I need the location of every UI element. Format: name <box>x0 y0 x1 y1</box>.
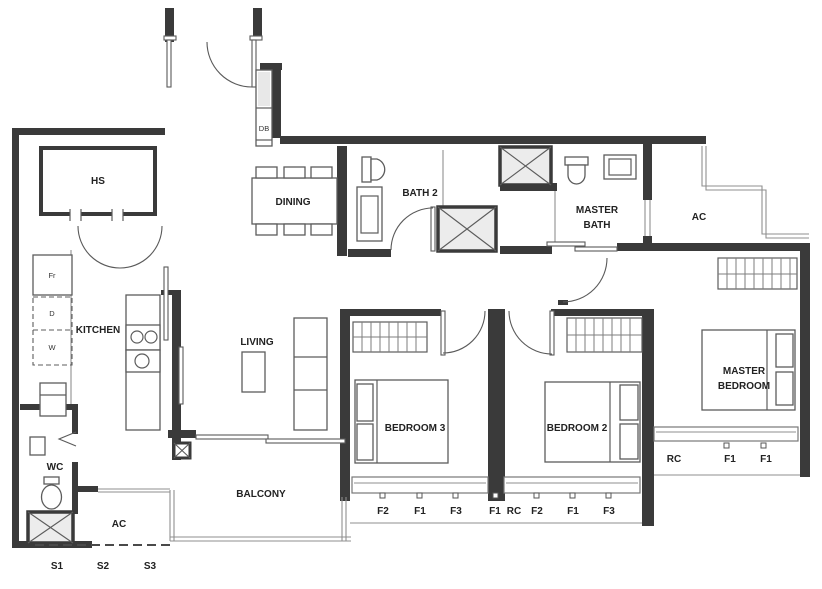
right-outer-wall <box>800 243 810 477</box>
floor-plan-drawing: HS DB DINING BATH 2 MASTER BATH AC KITCH… <box>0 0 822 589</box>
master-window-sill <box>654 427 798 441</box>
dryer-label: D <box>49 309 55 318</box>
room-label-balcony: BALCONY <box>236 489 286 500</box>
facade-label: F1 <box>414 506 426 517</box>
wc-fixtures <box>30 437 62 509</box>
hs-door-arc <box>78 226 162 268</box>
dining-chair <box>256 224 277 235</box>
masterbath-toilet-icon <box>568 165 585 184</box>
facade-mark-icon <box>570 493 575 498</box>
hall-top-wall <box>500 246 552 254</box>
masterbath-slider-panel <box>547 242 585 246</box>
dining-chair <box>284 167 305 178</box>
dryer-washer-stack <box>33 297 72 365</box>
bedroom3-door-leaf <box>441 311 445 355</box>
floor-plan: HS DB DINING BATH 2 MASTER BATH AC KITCH… <box>0 0 822 589</box>
facade-label: RC <box>507 506 521 517</box>
facade-label: F1 <box>567 506 579 517</box>
facade-mark-icon <box>724 443 729 448</box>
bedroom2-door-arc <box>509 311 552 354</box>
top-mid-wall <box>280 136 706 144</box>
dining-chair <box>311 224 332 235</box>
top-left-wall <box>12 128 165 135</box>
facade-mark-icon <box>453 493 458 498</box>
balcony-slider-panel <box>266 439 345 443</box>
db-cabinet-shade <box>258 72 270 106</box>
pillow-icon <box>776 372 793 405</box>
pillow-icon <box>357 384 373 421</box>
room-label-masterbath-1: MASTER <box>576 205 619 216</box>
shelter-label: S1 <box>51 561 64 572</box>
facade-label: F3 <box>603 506 615 517</box>
facade-label: F2 <box>377 506 389 517</box>
fridge-label: Fr <box>48 271 56 280</box>
db-cabinet <box>256 70 272 146</box>
entry-door-arc <box>207 42 252 87</box>
bedroom3-door-arc <box>443 311 485 353</box>
entry-door-leaf <box>167 40 171 87</box>
masterbath-toilet-tank <box>565 157 588 165</box>
facade-label: F1 <box>760 454 772 465</box>
room-label-masterbedroom-2: BEDROOM <box>718 381 770 392</box>
pillow-icon <box>357 424 373 460</box>
living-furniture <box>242 318 327 430</box>
left-outer-wall <box>12 128 19 548</box>
bedroom3-left-wall <box>340 309 350 501</box>
bedroom2-window-sill <box>504 477 640 493</box>
balcony-slider-panel <box>196 435 268 439</box>
pillow-icon <box>776 334 793 367</box>
bedroom2-right-wall <box>642 309 654 526</box>
hs-door-gap-left <box>70 209 81 217</box>
ac-bottom-wall <box>638 243 810 251</box>
room-label-bedroom2: BEDROOM 2 <box>547 423 608 434</box>
masterbath-slider-panel <box>575 247 617 251</box>
bath2-door-arc <box>391 208 433 250</box>
bath2-toilet-icon <box>371 159 385 180</box>
facade-label: F2 <box>531 506 543 517</box>
room-label-living: LIVING <box>240 337 274 348</box>
facade-mark-icon <box>606 493 611 498</box>
masterbath-right-wall-upper <box>643 144 652 200</box>
bath2-toilet-tank <box>362 157 371 182</box>
db-side-wall <box>272 63 281 138</box>
pillow-icon <box>620 424 638 459</box>
dining-chair <box>256 167 277 178</box>
bedroom2-top-wall <box>551 309 643 316</box>
facade-label: F3 <box>450 506 462 517</box>
bedroom2-door-leaf <box>550 311 554 355</box>
ac-upper-parapet-outer <box>706 146 809 238</box>
facade-mark-icon <box>493 493 498 498</box>
room-label-ac-lower: AC <box>112 519 126 530</box>
entry-wall-right <box>253 8 262 37</box>
hs-door-gap-right <box>112 209 123 217</box>
room-label-masterbath-2: BATH <box>583 220 610 231</box>
entry-jamb <box>250 36 262 40</box>
facade-label: F1 <box>724 454 736 465</box>
walls <box>12 8 810 548</box>
wc-bifold-door <box>59 432 76 446</box>
pillow-icon <box>620 385 638 420</box>
room-label-hs: HS <box>91 176 105 187</box>
facade-mark-icon <box>761 443 766 448</box>
hob-bottom <box>126 350 160 372</box>
bath2-bottom-wall <box>348 249 391 257</box>
wc-basin-icon <box>30 437 45 455</box>
room-label-ac-upper: AC <box>692 212 706 223</box>
room-label-masterbedroom-1: MASTER <box>723 366 766 377</box>
shelter-label: S3 <box>144 561 157 572</box>
coffee-table <box>242 352 265 392</box>
bedroom3-top-wall <box>348 309 441 316</box>
kitchen-slider-panel <box>179 347 183 404</box>
master-bedroom-door-arc <box>563 258 607 302</box>
room-label-wc: WC <box>47 462 64 473</box>
dining-chair <box>284 224 305 235</box>
room-label-bedroom3: BEDROOM 3 <box>385 423 446 434</box>
room-label-kitchen: KITCHEN <box>76 325 120 336</box>
kitchen-slider-panel <box>164 267 168 340</box>
sofa-icon <box>294 318 327 430</box>
bath2-door-leaf <box>431 207 435 251</box>
facade-mark-icon <box>380 493 385 498</box>
wc-toilet-icon <box>42 485 62 509</box>
shelter-label: S2 <box>97 561 110 572</box>
room-label-dining: DINING <box>276 197 311 208</box>
washer-label: W <box>48 343 56 352</box>
entry-jamb <box>164 36 176 40</box>
balcony-door-stub <box>168 430 196 438</box>
facade-mark-icon <box>534 493 539 498</box>
facade-mark-icon <box>417 493 422 498</box>
facade-label: RC <box>667 454 681 465</box>
center-column-wall <box>488 309 505 501</box>
bedroom3-window-sill <box>352 477 488 493</box>
masterbath-fixtures <box>565 155 636 184</box>
dining-chair <box>311 167 332 178</box>
room-label-bath2: BATH 2 <box>402 188 438 199</box>
db-label: DB <box>259 124 269 133</box>
wc-right-wall-upper <box>72 404 78 434</box>
kitchen-sink-unit <box>40 383 66 416</box>
bath2-fixtures <box>357 157 385 241</box>
facade-label: F1 <box>489 506 501 517</box>
dining-bath2-wall <box>337 146 347 256</box>
ac-lower-stub <box>77 486 98 492</box>
wc-toilet-tank <box>44 477 59 484</box>
